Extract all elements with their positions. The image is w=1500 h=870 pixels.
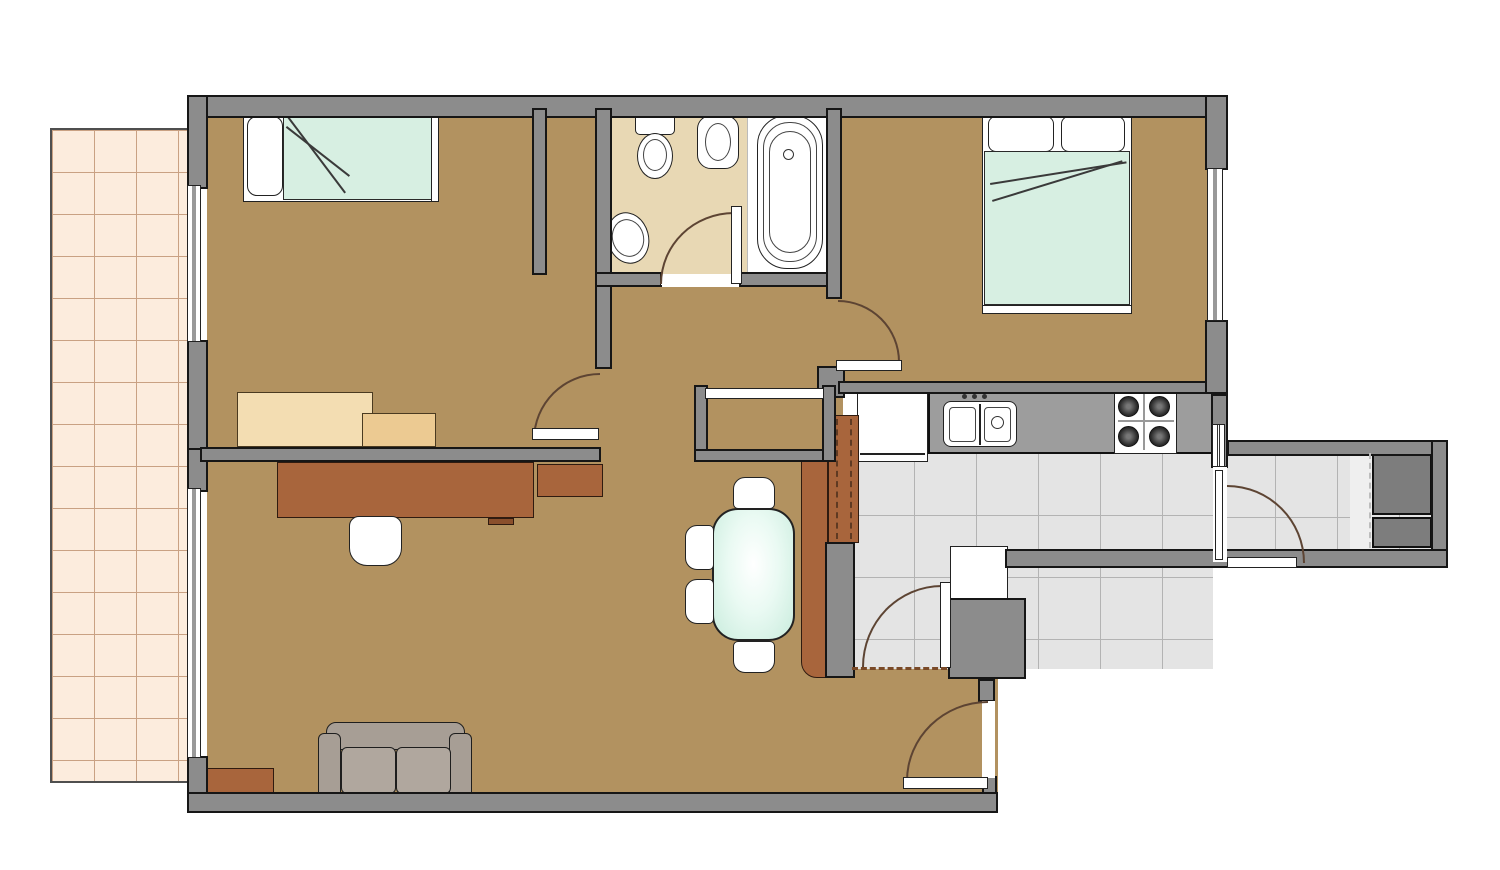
desk-keyboard-tab [488,518,514,525]
stove-bar-vertical [1143,394,1145,450]
desk-living-extension [537,464,603,497]
dining-chair-west-2 [685,579,714,624]
corridor-door-leaf [1227,557,1297,568]
pantry-dash-2 [850,419,852,539]
closet-wall-bottom [694,449,836,462]
desk-living-room [277,462,534,518]
kitchen-door-leaf [940,582,951,668]
faucet-dot-1 [962,394,967,399]
wall-bathroom-bottom-left [595,272,662,287]
bathroom-door-leaf [731,206,742,284]
stove-burner-3 [1118,426,1139,447]
wall-bathroom-left [595,108,612,369]
wall-bedroom1-right [532,108,547,275]
bed-single-footboard [431,110,439,202]
window-kitchen [1212,424,1225,467]
wall-bottom [187,792,998,813]
closet-wall-right [822,385,836,462]
desk-chair [349,516,402,566]
kitchen-basin-drain [991,416,1004,429]
stove-burner-1 [1118,396,1139,417]
hall-door-leaf [532,428,599,440]
dining-chair-west-1 [685,525,714,570]
kitchen-sink-divider [979,404,981,445]
faucet-dot-2 [972,394,977,399]
desk-bedroom1-side [362,413,436,447]
counter-peninsula [801,460,828,678]
bed-single-blanket [283,112,433,200]
sofa-cushion-left [341,747,396,794]
patio-terrace [50,128,189,783]
fridge-door-line [860,453,925,455]
bed-double-footboard [982,305,1132,314]
wall-top [187,95,1228,118]
wall-bedroom2-right-upper [1205,95,1228,170]
window-bedroom1 [187,185,201,342]
wall-bathroom-bottom-right [739,272,839,287]
window-bedroom2 [1207,168,1223,321]
bidet-inner [705,123,731,161]
corridor-cabinet-lower [1372,517,1432,548]
desk-bedroom1-main [237,392,373,447]
bed-double-pillow-left [988,116,1054,152]
dining-chair-north [733,477,775,509]
wall-bedroom2-left [826,108,842,299]
toilet-bowl-inner [643,139,667,171]
threshold-corridor [1369,453,1371,548]
wall-living-top [200,447,601,462]
dining-chair-south [733,641,775,673]
faucet-dot-3 [982,394,987,399]
stove-burner-2 [1149,396,1170,417]
floor-plan [0,0,1500,870]
corridor-door-closed-leaf [1215,470,1223,560]
corridor-cabinet-upper [1372,452,1432,515]
bed-single-pillow [247,116,283,196]
wall-left-mid [187,340,208,450]
wall-kitchen-block [948,598,1026,679]
wall-corridor-top [1227,440,1448,456]
bed-double-pillow-right [1061,116,1125,152]
dining-table [712,508,795,641]
closet-sliding-door [705,388,824,399]
kitchen-basin-left [949,407,976,442]
bedroom2-door-leaf [836,360,902,371]
window-living-room [187,488,201,758]
sofa-cushion-right [396,747,451,794]
wall-bedroom2-right-lower [1205,320,1228,394]
bathtub-drain [783,149,794,160]
stove-burner-4 [1149,426,1170,447]
entry-door-leaf [903,777,988,789]
fridge [857,392,928,462]
pantry-dash-1 [836,419,838,539]
kitchen-appliance [950,546,1008,599]
stove-bar-horizontal [1118,420,1174,422]
sofa-back [326,722,465,750]
wall-kitchen-mid [825,542,855,678]
wall-entry-stub [978,679,995,702]
threshold-kitchen-living [852,667,947,670]
wall-kitchen-top [838,381,1228,394]
wall-left-upper [187,95,208,189]
